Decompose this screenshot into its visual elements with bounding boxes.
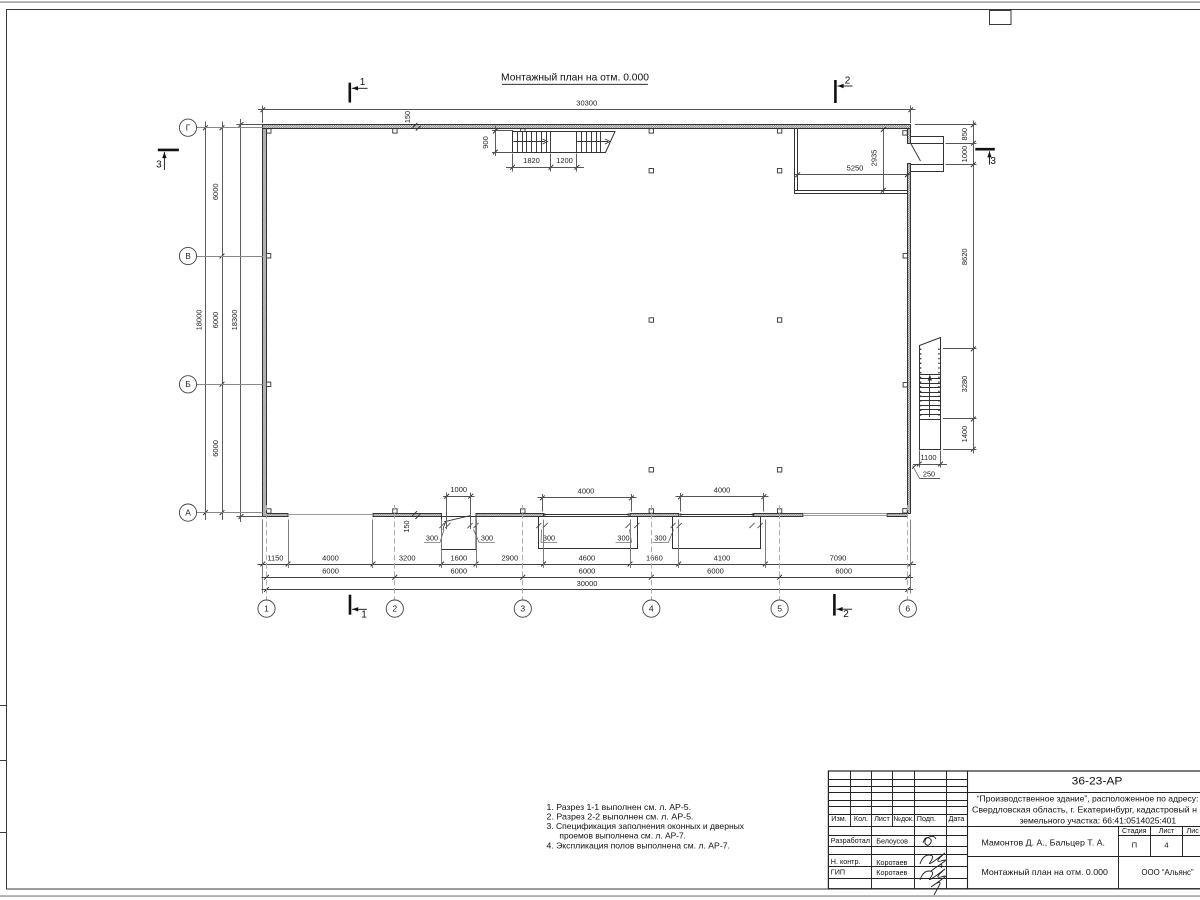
svg-text:4: 4 xyxy=(1164,841,1168,850)
svg-text:1: 1 xyxy=(361,610,367,621)
svg-text:“Производственное здание”, рас: “Производственное здание”, расположенное… xyxy=(977,794,1199,804)
svg-text:6000: 6000 xyxy=(211,312,220,329)
svg-text:Монтажный план на отм. 0.000: Монтажный план на отм. 0.000 xyxy=(981,868,1108,877)
svg-text:6: 6 xyxy=(905,604,910,614)
svg-text:8620: 8620 xyxy=(960,248,969,265)
svg-text:2900: 2900 xyxy=(501,553,518,562)
svg-text:18000: 18000 xyxy=(195,310,204,331)
svg-text:1100: 1100 xyxy=(920,453,936,462)
svg-text:1200: 1200 xyxy=(556,156,573,165)
svg-text:1000: 1000 xyxy=(450,485,467,494)
svg-text:4100: 4100 xyxy=(714,553,731,562)
svg-text:1150: 1150 xyxy=(267,553,283,562)
svg-text:18300: 18300 xyxy=(230,310,239,331)
svg-text:2: 2 xyxy=(392,604,397,614)
svg-text:6000: 6000 xyxy=(322,567,339,576)
svg-text:Свердловская область, г. Екате: Свердловская область, г. Екатеринбург, к… xyxy=(972,805,1197,815)
svg-text:6000: 6000 xyxy=(579,567,596,576)
svg-text:4600: 4600 xyxy=(578,553,595,562)
svg-text:3: 3 xyxy=(990,156,996,167)
svg-text:3: 3 xyxy=(156,160,162,171)
svg-text:150: 150 xyxy=(402,520,411,532)
svg-text:6000: 6000 xyxy=(450,567,467,576)
svg-text:2935: 2935 xyxy=(870,150,879,167)
svg-text:300: 300 xyxy=(654,534,666,543)
svg-text:Кол.: Кол. xyxy=(854,814,868,823)
svg-text:2. Разрез 2-2 выполнен см. л.: 2. Разрез 2-2 выполнен см. л. АР-5. xyxy=(547,811,694,821)
svg-text:300: 300 xyxy=(481,534,493,543)
svg-text:Лист: Лист xyxy=(1159,826,1175,835)
svg-text:Белоусов: Белоусов xyxy=(876,837,908,846)
svg-text:5: 5 xyxy=(777,604,782,614)
svg-text:Стадия: Стадия xyxy=(1122,826,1147,835)
svg-text:30300: 30300 xyxy=(576,99,597,108)
svg-text:1. Разрез 1-1 выполнен см. л.: 1. Разрез 1-1 выполнен см. л. АР-5. xyxy=(547,802,692,812)
svg-text:1660: 1660 xyxy=(646,553,663,562)
svg-text:Изм.: Изм. xyxy=(831,814,846,823)
svg-text:проемов выполнена см. л. АР-7.: проемов выполнена см. л. АР-7. xyxy=(559,831,686,841)
svg-text:4: 4 xyxy=(649,604,654,614)
svg-text:1400: 1400 xyxy=(960,426,969,443)
svg-text:Коротаев: Коротаев xyxy=(876,868,907,877)
svg-text:земельного участка: 66:41:0514: земельного участка: 66:41:0514025:401 xyxy=(1019,815,1176,825)
svg-text:1600: 1600 xyxy=(450,553,467,562)
svg-text:В: В xyxy=(185,251,191,261)
svg-text:3. Спецификация заполнения око: 3. Спецификация заполнения оконных и две… xyxy=(547,821,745,831)
svg-text:Монтажный план на отм. 0.000: Монтажный план на отм. 0.000 xyxy=(501,73,649,84)
svg-text:Лист: Лист xyxy=(874,814,890,823)
svg-text:Мамонтов Д. А., Бальцер Т. А.: Мамонтов Д. А., Бальцер Т. А. xyxy=(981,838,1105,847)
svg-text:№док.: №док. xyxy=(893,816,914,823)
svg-text:6000: 6000 xyxy=(835,567,852,576)
svg-text:А: А xyxy=(185,508,191,518)
svg-text:36-23-АР: 36-23-АР xyxy=(1072,776,1123,788)
svg-text:900: 900 xyxy=(481,136,490,149)
svg-text:3: 3 xyxy=(520,604,525,614)
svg-text:1: 1 xyxy=(360,77,366,88)
svg-text:П: П xyxy=(1132,841,1137,850)
svg-text:5250: 5250 xyxy=(847,164,864,173)
svg-text:1820: 1820 xyxy=(523,156,540,165)
svg-text:3200: 3200 xyxy=(399,553,416,562)
svg-text:Разработал: Разработал xyxy=(831,836,870,845)
svg-text:250: 250 xyxy=(923,470,935,479)
svg-text:ГИП: ГИП xyxy=(831,868,845,877)
svg-text:300: 300 xyxy=(426,534,438,543)
svg-text:Дата: Дата xyxy=(949,814,965,823)
svg-text:Подп.: Подп. xyxy=(917,814,936,823)
svg-text:6000: 6000 xyxy=(211,440,220,457)
svg-text:Г: Г xyxy=(186,123,191,133)
svg-text:4. Экспликация полов выполнена: 4. Экспликация полов выполнена см. л. АР… xyxy=(547,840,730,850)
svg-text:2: 2 xyxy=(845,76,851,87)
svg-text:7090: 7090 xyxy=(830,553,847,562)
svg-text:4000: 4000 xyxy=(714,485,731,494)
svg-text:30000: 30000 xyxy=(577,579,598,588)
svg-text:150: 150 xyxy=(403,111,412,123)
svg-text:1000: 1000 xyxy=(960,146,969,163)
svg-text:6000: 6000 xyxy=(211,183,220,200)
svg-text:Коротаев: Коротаев xyxy=(876,858,907,867)
svg-text:3280: 3280 xyxy=(960,376,969,393)
svg-text:850: 850 xyxy=(960,128,969,141)
svg-text:Б: Б xyxy=(185,379,191,389)
svg-text:1: 1 xyxy=(264,604,269,614)
svg-text:300: 300 xyxy=(617,534,629,543)
svg-text:4000: 4000 xyxy=(322,553,339,562)
svg-text:6000: 6000 xyxy=(707,567,724,576)
svg-text:300: 300 xyxy=(543,534,555,543)
svg-text:4000: 4000 xyxy=(578,487,595,496)
svg-text:ООО “Альянс”: ООО “Альянс” xyxy=(1141,868,1193,877)
svg-text:Н. контр.: Н. контр. xyxy=(831,857,861,866)
svg-text:Лис: Лис xyxy=(1187,826,1200,835)
svg-text:2: 2 xyxy=(843,609,849,620)
